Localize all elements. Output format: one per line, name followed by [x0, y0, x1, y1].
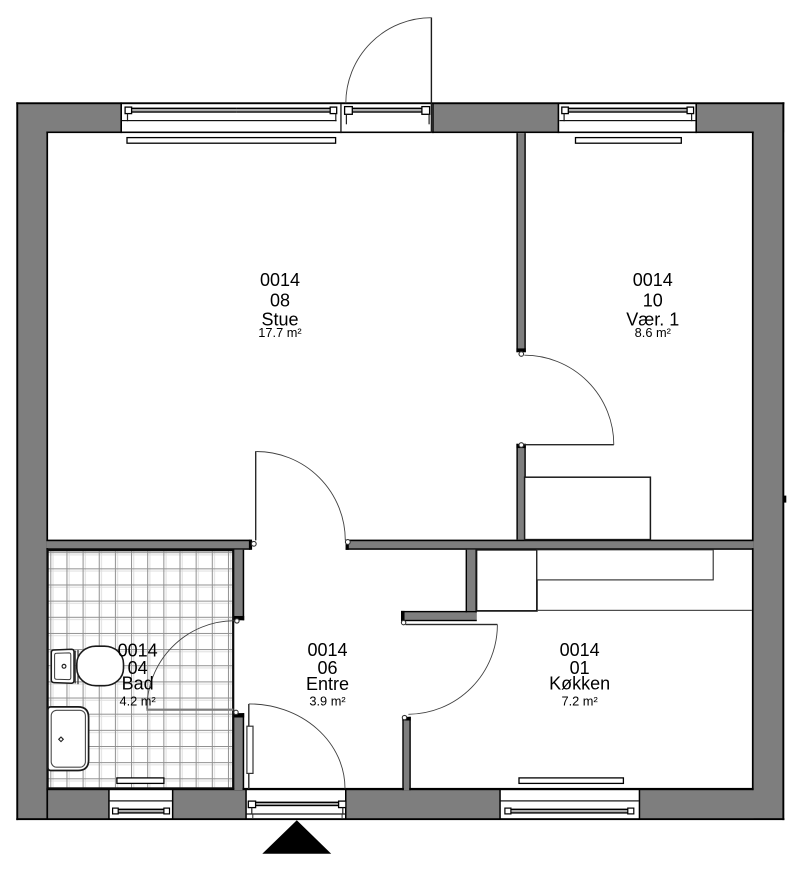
svg-text:10: 10 — [643, 291, 663, 311]
svg-text:0014: 0014 — [560, 640, 600, 660]
svg-text:3.9 m²: 3.9 m² — [309, 693, 346, 708]
svg-text:0014: 0014 — [307, 640, 347, 660]
svg-text:8.6 m²: 8.6 m² — [635, 325, 672, 340]
svg-text:0014: 0014 — [633, 270, 673, 290]
svg-text:Entre: Entre — [306, 674, 349, 694]
svg-text:Køkken: Køkken — [549, 674, 610, 694]
svg-text:08: 08 — [270, 291, 290, 311]
svg-text:17.7 m²: 17.7 m² — [258, 325, 302, 340]
svg-text:Bad: Bad — [122, 674, 154, 694]
svg-text:4.2 m²: 4.2 m² — [119, 693, 156, 708]
svg-text:7.2 m²: 7.2 m² — [561, 694, 598, 709]
svg-text:0014: 0014 — [260, 270, 300, 290]
